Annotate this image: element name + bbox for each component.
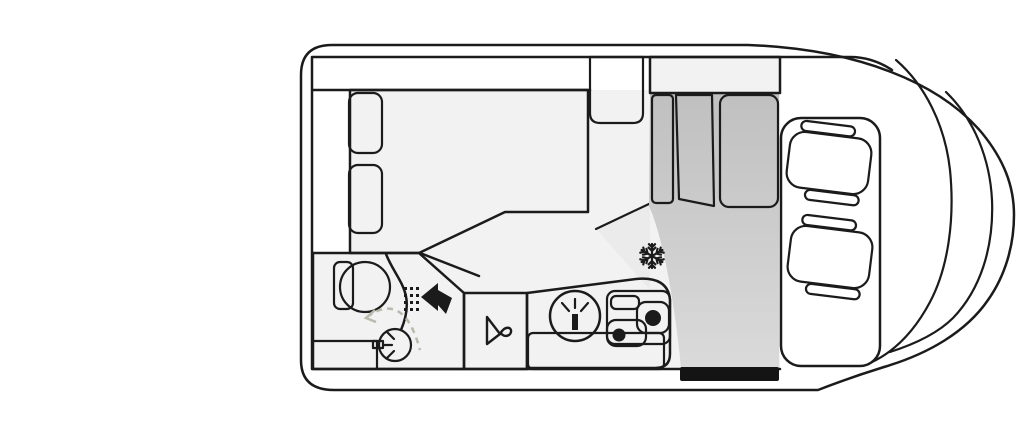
campervan-floorplan (0, 0, 1024, 428)
driver-seat (784, 119, 875, 206)
burner (645, 310, 661, 326)
cab-zone (781, 118, 880, 366)
overhead-strip (313, 58, 650, 90)
entry-step (680, 367, 779, 381)
passenger-seat (785, 213, 876, 300)
rear-left-strip (313, 90, 350, 253)
burner (613, 329, 626, 342)
windshield-curve-inner (872, 60, 952, 362)
floorplan-canvas (0, 0, 1024, 428)
